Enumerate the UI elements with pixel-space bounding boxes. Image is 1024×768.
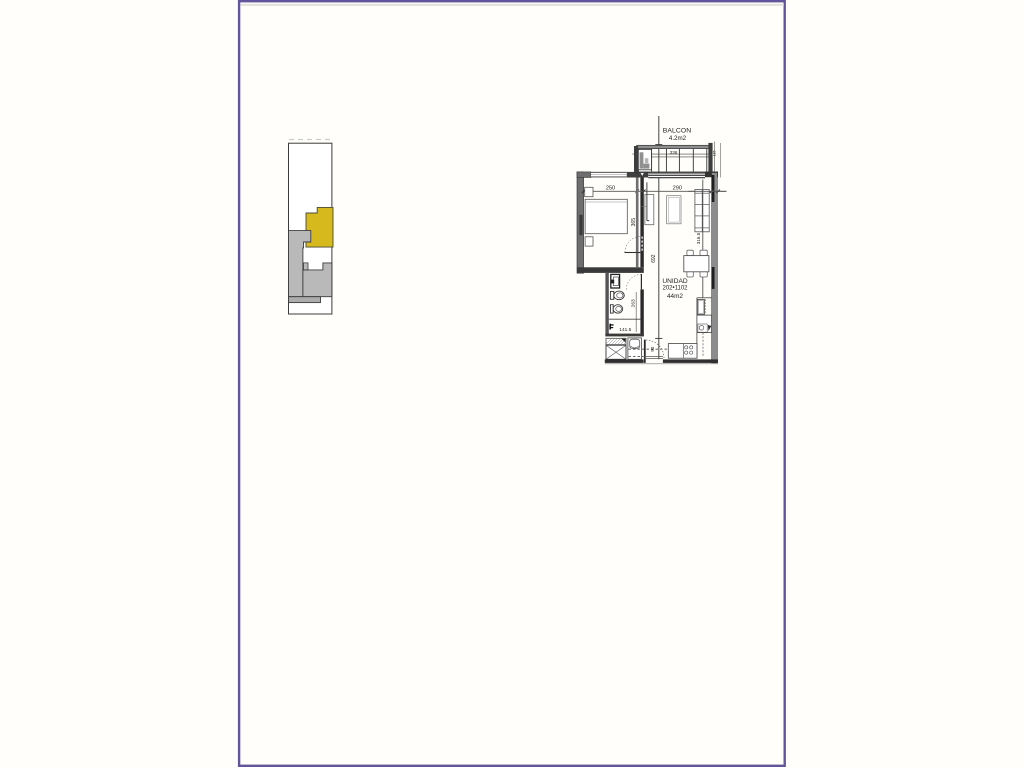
svg-text:115: 115 bbox=[713, 151, 717, 157]
svg-text:250: 250 bbox=[606, 186, 615, 192]
svg-text:290: 290 bbox=[673, 186, 682, 192]
svg-text:90: 90 bbox=[650, 346, 655, 352]
svg-text:263: 263 bbox=[630, 299, 636, 307]
svg-text:141.5: 141.5 bbox=[619, 327, 631, 333]
svg-text:336: 336 bbox=[670, 150, 678, 155]
svg-text:202•1102: 202•1102 bbox=[662, 286, 688, 292]
svg-text:316.5: 316.5 bbox=[696, 232, 701, 244]
svg-text:44m2: 44m2 bbox=[667, 293, 683, 300]
svg-text:692: 692 bbox=[651, 254, 657, 263]
svg-text:UNIDAD: UNIDAD bbox=[662, 278, 688, 285]
svg-text:BALCON: BALCON bbox=[663, 128, 692, 135]
svg-text:365: 365 bbox=[631, 218, 637, 227]
svg-text:4.2m2: 4.2m2 bbox=[669, 135, 687, 142]
